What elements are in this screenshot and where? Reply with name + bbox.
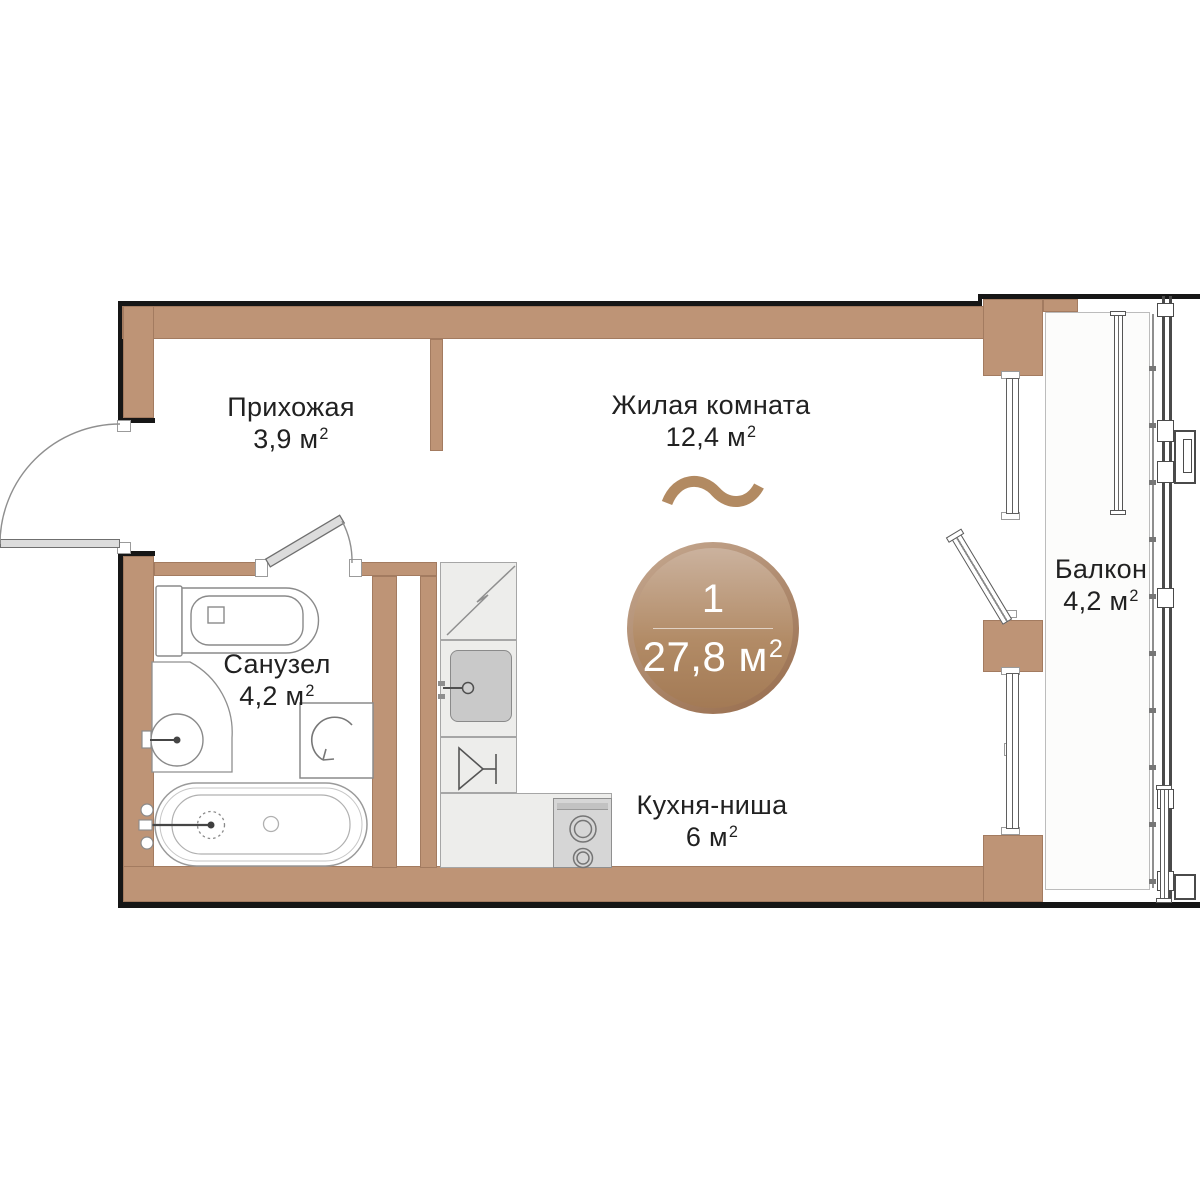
bathroom-jamb-left [255, 559, 268, 577]
kitchen-bar-cell [440, 737, 517, 793]
floor-plan: Прихожая 3,9 м2 Жилая комната 12,4 м2 Са… [0, 0, 1200, 1200]
wall-hallway-partition [430, 339, 443, 451]
room-label-balcony: Балкон 4,2 м2 [1055, 553, 1147, 618]
sash-cap [1156, 898, 1172, 903]
room-label-living: Жилая комната 12,4 м2 [612, 389, 811, 454]
balcony-open-sash-top [1114, 314, 1123, 512]
balcony-door-handle [946, 528, 965, 542]
wall-kitchen-left [420, 576, 437, 868]
room-area: 4,2 м2 [1055, 585, 1147, 617]
balcony-window-2 [1006, 673, 1019, 829]
wall-bathroom-top-right [352, 562, 437, 576]
glazing-connector [1157, 588, 1174, 608]
glazing-bracket-inner [1183, 439, 1192, 473]
glazing-connector [1157, 303, 1174, 317]
room-label-bathroom: Санузел 4,2 м2 [223, 648, 330, 713]
room-area: 3,9 м2 [227, 423, 355, 455]
stove-panel [557, 803, 608, 810]
wall-balcony-pier-bottom [983, 835, 1043, 902]
outline-bottom [118, 902, 1200, 908]
badge-divider [653, 628, 773, 629]
balcony-door-leaf [951, 533, 1012, 624]
wall-left-lower [123, 556, 154, 902]
bathroom-door-arc [342, 521, 352, 563]
kitchen-fridge-cell [440, 562, 517, 640]
sash-cap [1110, 510, 1126, 515]
room-label-kitchen: Кухня-ниша 6 м2 [637, 789, 788, 854]
total-area: 27,8 м2 [643, 636, 784, 678]
kitchen-sink-icon [450, 650, 512, 722]
wall-left-upper [123, 306, 154, 418]
total-area-badge: 1 27,8 м2 [627, 542, 799, 714]
glazing-connector [1157, 461, 1174, 483]
room-area: 6 м2 [637, 821, 788, 853]
wall-balcony-pier-middle [983, 620, 1043, 672]
rooms-count: 1 [702, 579, 724, 619]
fixtures-layer [0, 0, 1200, 1200]
room-name: Жилая комната [612, 389, 811, 421]
bathroom-sink-icon [142, 662, 232, 772]
entrance-door-arc [0, 424, 120, 544]
balcony-window-1 [1006, 378, 1019, 514]
balcony-open-sash-bottom [1160, 788, 1169, 900]
bathtub-icon [139, 783, 367, 866]
wall-bathroom-top-left [154, 562, 256, 576]
room-name: Кухня-ниша [637, 789, 788, 821]
entrance-door-leaf [0, 539, 120, 548]
sash-cap [1156, 785, 1172, 790]
room-area: 4,2 м2 [223, 680, 330, 712]
wall-bathroom-right [372, 576, 397, 868]
wall-top [122, 306, 1043, 339]
entrance-jamb-top [117, 420, 131, 432]
toilet-icon [156, 586, 319, 656]
room-label-hallway: Прихожая 3,9 м2 [227, 391, 355, 456]
outline-top-step [978, 294, 982, 306]
washing-machine-icon [300, 703, 373, 778]
total-area-badge-inner: 1 27,8 м2 [633, 548, 793, 708]
room-area: 12,4 м2 [612, 421, 811, 453]
wall-balcony-pier-top [983, 299, 1043, 376]
balcony-railing-ticks [1149, 314, 1156, 888]
wall-balcony-pier-top-ext [1043, 299, 1078, 312]
bathroom-jamb-right [349, 559, 362, 577]
glazing-bracket-bottom [1174, 874, 1196, 900]
room-name: Прихожая [227, 391, 355, 423]
glazing-connector [1157, 420, 1174, 442]
glazing-bracket-top [1174, 430, 1196, 484]
wave-icon [667, 481, 759, 503]
bathroom-door-leaf [266, 515, 345, 567]
room-name: Санузел [223, 648, 330, 680]
stove-icon [553, 798, 612, 868]
wall-bottom [123, 866, 1043, 902]
room-name: Балкон [1055, 553, 1147, 585]
sash-cap [1110, 311, 1126, 316]
